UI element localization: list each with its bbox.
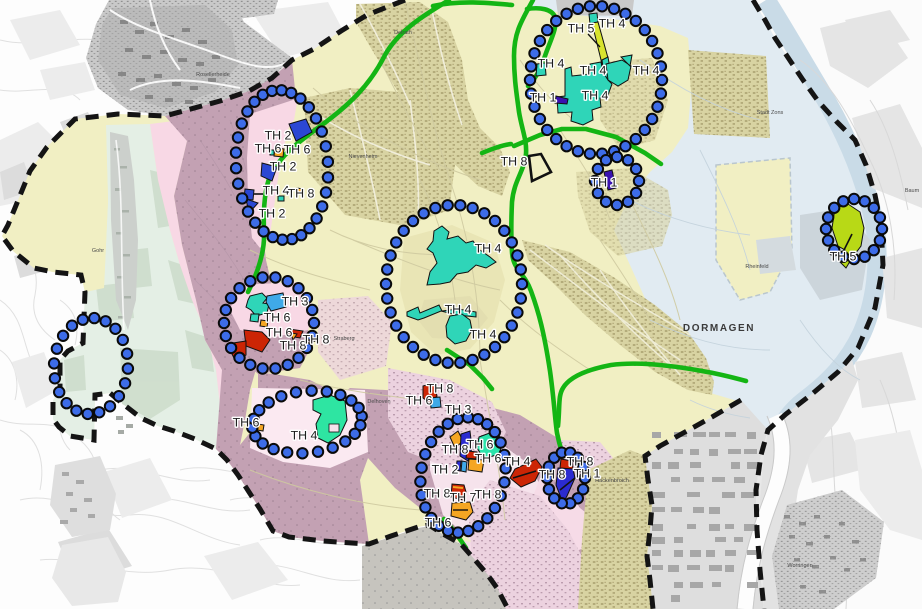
svg-text:TH 4: TH 4 <box>445 303 472 317</box>
svg-text:TH 5: TH 5 <box>568 22 595 36</box>
svg-text:TH 6: TH 6 <box>425 516 452 530</box>
svg-text:TH 7: TH 7 <box>450 491 477 505</box>
svg-text:TH 3: TH 3 <box>282 295 309 309</box>
svg-text:Rheinfeld: Rheinfeld <box>745 264 768 270</box>
svg-text:TH 2: TH 2 <box>432 463 459 477</box>
svg-text:TH 3: TH 3 <box>445 403 472 417</box>
svg-text:Straberg: Straberg <box>333 336 354 342</box>
svg-text:Worringen: Worringen <box>787 563 812 569</box>
svg-text:TH 6: TH 6 <box>266 326 293 340</box>
svg-text:TH 8: TH 8 <box>442 443 469 457</box>
svg-text:Gohr: Gohr <box>92 248 104 254</box>
svg-text:TH 6: TH 6 <box>284 143 311 157</box>
svg-text:TH 8: TH 8 <box>424 487 451 501</box>
svg-text:TH 4: TH 4 <box>599 17 626 31</box>
svg-text:TH 8: TH 8 <box>303 333 330 347</box>
svg-text:TH 4: TH 4 <box>504 455 531 469</box>
svg-text:TH 8: TH 8 <box>288 187 315 201</box>
svg-text:TH 6: TH 6 <box>467 438 494 452</box>
svg-text:TH 1: TH 1 <box>530 91 557 105</box>
svg-text:TH 6: TH 6 <box>406 394 433 408</box>
svg-text:TH 4: TH 4 <box>538 57 565 71</box>
svg-text:Delhoven: Delhoven <box>367 399 390 405</box>
svg-text:TH 4: TH 4 <box>633 64 660 78</box>
svg-text:TH 4: TH 4 <box>582 89 609 103</box>
svg-text:Nievenheim: Nievenheim <box>348 154 377 160</box>
svg-text:TH 2: TH 2 <box>259 207 286 221</box>
svg-text:Stadt Zons: Stadt Zons <box>757 110 784 116</box>
svg-text:TH 6: TH 6 <box>264 311 291 325</box>
svg-text:TH 8: TH 8 <box>501 155 528 169</box>
svg-text:Delrath: Delrath <box>394 30 412 36</box>
svg-text:TH 4: TH 4 <box>291 429 318 443</box>
svg-text:TH 4: TH 4 <box>263 184 290 198</box>
svg-text:TH 2: TH 2 <box>265 129 292 143</box>
svg-text:TH 1: TH 1 <box>591 176 618 190</box>
svg-text:TH 4: TH 4 <box>580 64 607 78</box>
svg-text:TH 4: TH 4 <box>470 328 497 342</box>
svg-text:TH 8: TH 8 <box>475 488 502 502</box>
svg-text:TH 6: TH 6 <box>233 416 260 430</box>
svg-text:Baum: Baum <box>905 188 920 194</box>
svg-text:TH 4: TH 4 <box>475 242 502 256</box>
svg-text:TH 6: TH 6 <box>475 452 502 466</box>
svg-text:TH 2: TH 2 <box>270 160 297 174</box>
svg-text:TH 1: TH 1 <box>574 467 601 481</box>
svg-text:Rosellerheide: Rosellerheide <box>196 72 230 78</box>
svg-text:DORMAGEN: DORMAGEN <box>683 323 755 334</box>
svg-text:TH 5: TH 5 <box>830 250 857 264</box>
svg-text:TH 6: TH 6 <box>255 142 282 156</box>
svg-text:TH 8: TH 8 <box>539 468 566 482</box>
